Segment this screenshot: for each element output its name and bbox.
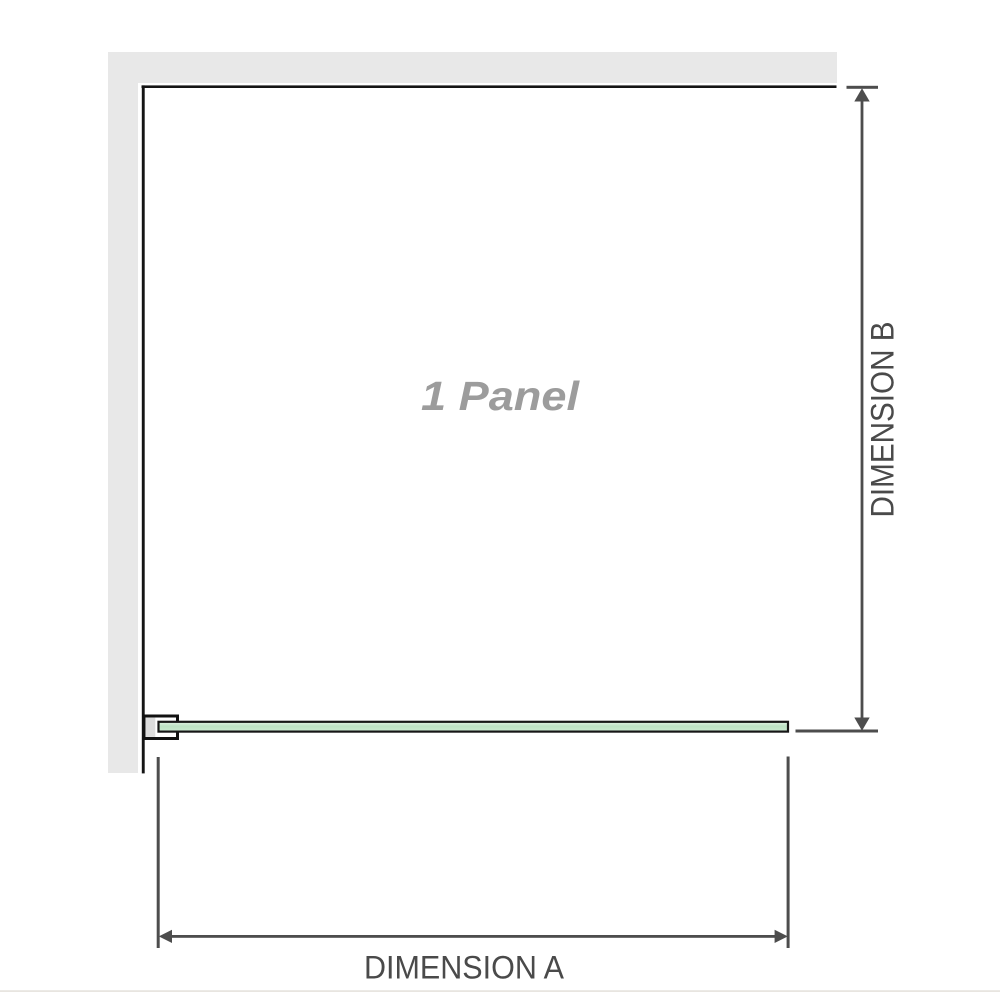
svg-text:DIMENSION A: DIMENSION A [364,950,565,986]
svg-text:1 Panel: 1 Panel [421,373,581,419]
svg-text:DIMENSION B: DIMENSION B [865,322,901,518]
